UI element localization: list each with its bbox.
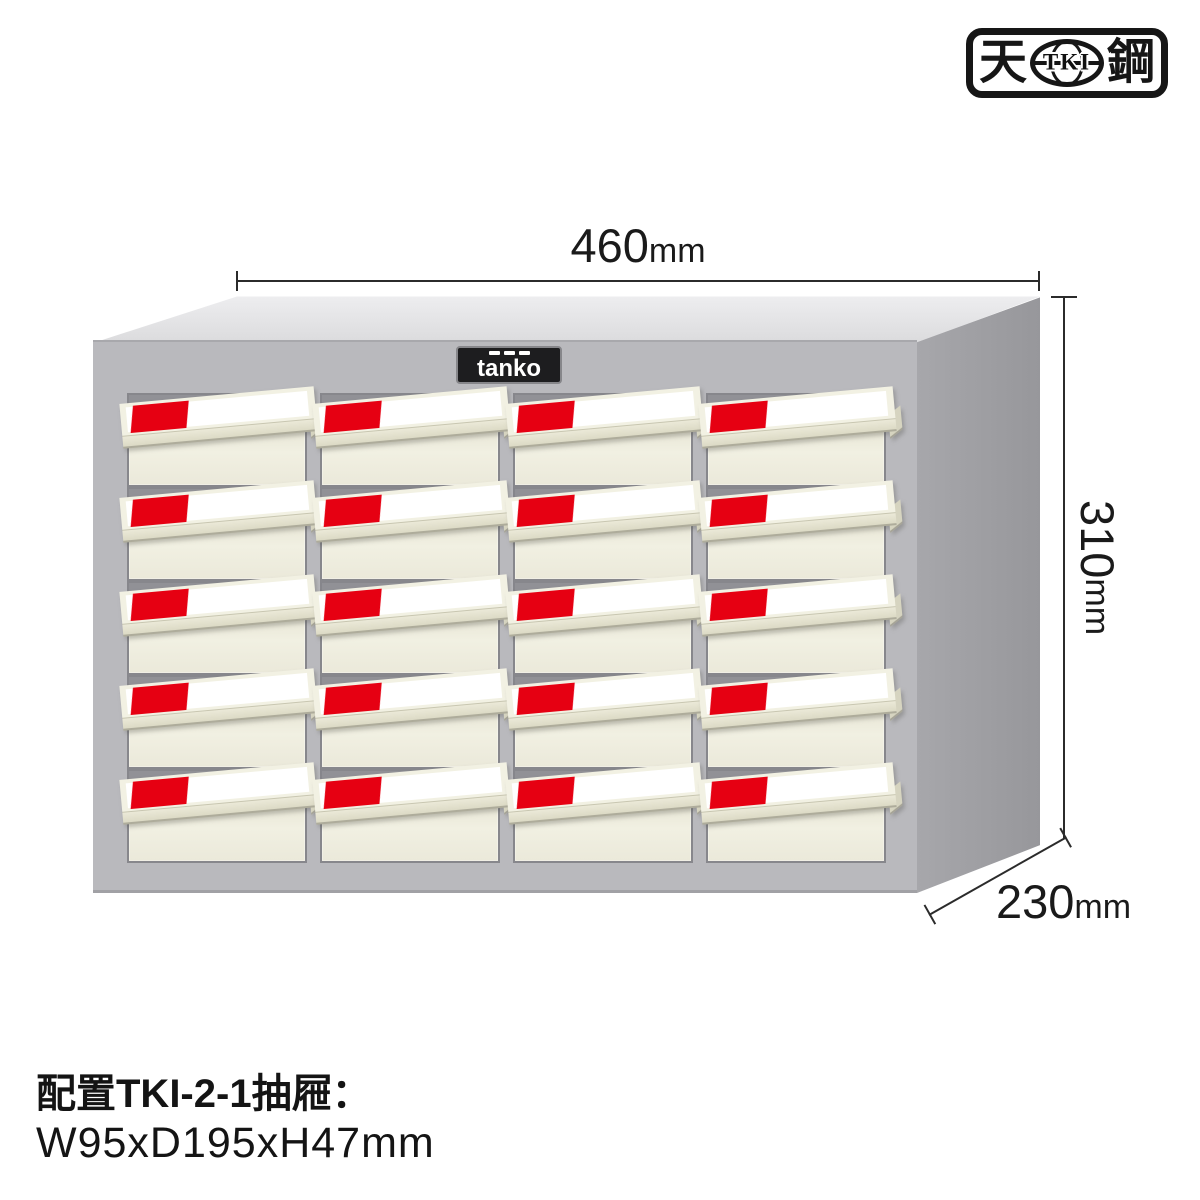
red-label-mark [323,777,381,809]
drawer-cell [127,675,307,769]
drawer-cell [706,393,886,487]
width-dimension-label: 460mm [236,218,1040,273]
drawer-cell [127,487,307,581]
red-label-mark [516,401,574,433]
red-label-mark [709,495,767,527]
depth-value: 230 [996,875,1074,928]
height-value: 310 [1071,500,1124,578]
caption-line-1: 配置TKI-2-1抽屜： [36,1070,435,1118]
drawer-cell [513,581,693,675]
drawer-cell [320,393,500,487]
dimension-tick [1059,828,1072,848]
depth-dimension-label: 230mm [996,874,1131,929]
red-label-mark [709,683,767,715]
red-label-mark [516,495,574,527]
brand-logo: 天 TKI 鋼 [966,28,1168,98]
drawer-cell [320,581,500,675]
drawer-cell [127,393,307,487]
drawer-cell [127,769,307,863]
red-label-mark [323,589,381,621]
caption-line-2: W95xD195xH47mm [36,1118,435,1170]
logo-globe-icon: TKI [1030,39,1104,87]
drawer-cell [706,675,886,769]
logo-oval-text: TKI [1030,49,1104,75]
drawer-cell [513,393,693,487]
height-unit: mm [1078,578,1116,635]
cabinet-top-edge [93,340,917,342]
drawer-cell [127,581,307,675]
drawer-cell [706,487,886,581]
tanko-nameplate: tanko [456,346,562,384]
logo-char-right: 鋼 [1107,39,1155,87]
red-label-mark [709,777,767,809]
dimension-tick [1038,271,1040,291]
height-dimension-label: 310mm [1070,500,1125,635]
red-label-mark [516,777,574,809]
red-label-mark [709,401,767,433]
red-label-mark [516,683,574,715]
red-label-mark [323,401,381,433]
red-label-mark [130,777,188,809]
logo-char-left: 天 [979,39,1027,87]
red-label-mark [323,495,381,527]
red-label-mark [130,401,188,433]
nameplate-brand-text: tanko [458,357,560,380]
cabinet-side-face [917,295,1040,893]
red-label-mark [130,589,188,621]
drawer-cell [320,675,500,769]
depth-unit: mm [1074,888,1131,926]
drawer-cell [320,487,500,581]
width-unit: mm [649,232,706,270]
dimension-tick [236,271,238,291]
red-label-mark [709,589,767,621]
drawer-cell [513,487,693,581]
drawer-cell [513,675,693,769]
red-label-mark [516,589,574,621]
product-caption: 配置TKI-2-1抽屜： W95xD195xH47mm [36,1070,435,1170]
red-label-mark [130,683,188,715]
height-dimension-line [1063,296,1065,838]
drawer-cell [320,769,500,863]
drawer-cell [706,769,886,863]
drawer-cell [513,769,693,863]
red-label-mark [130,495,188,527]
dimension-tick [924,904,937,924]
drawer-cell [706,581,886,675]
width-value: 460 [570,219,648,272]
cabinet-top-face [93,295,1040,343]
height-dimension-tick [1051,296,1077,298]
dimension-line [236,280,1040,282]
red-label-mark [323,683,381,715]
width-dimension-line [236,271,1040,291]
